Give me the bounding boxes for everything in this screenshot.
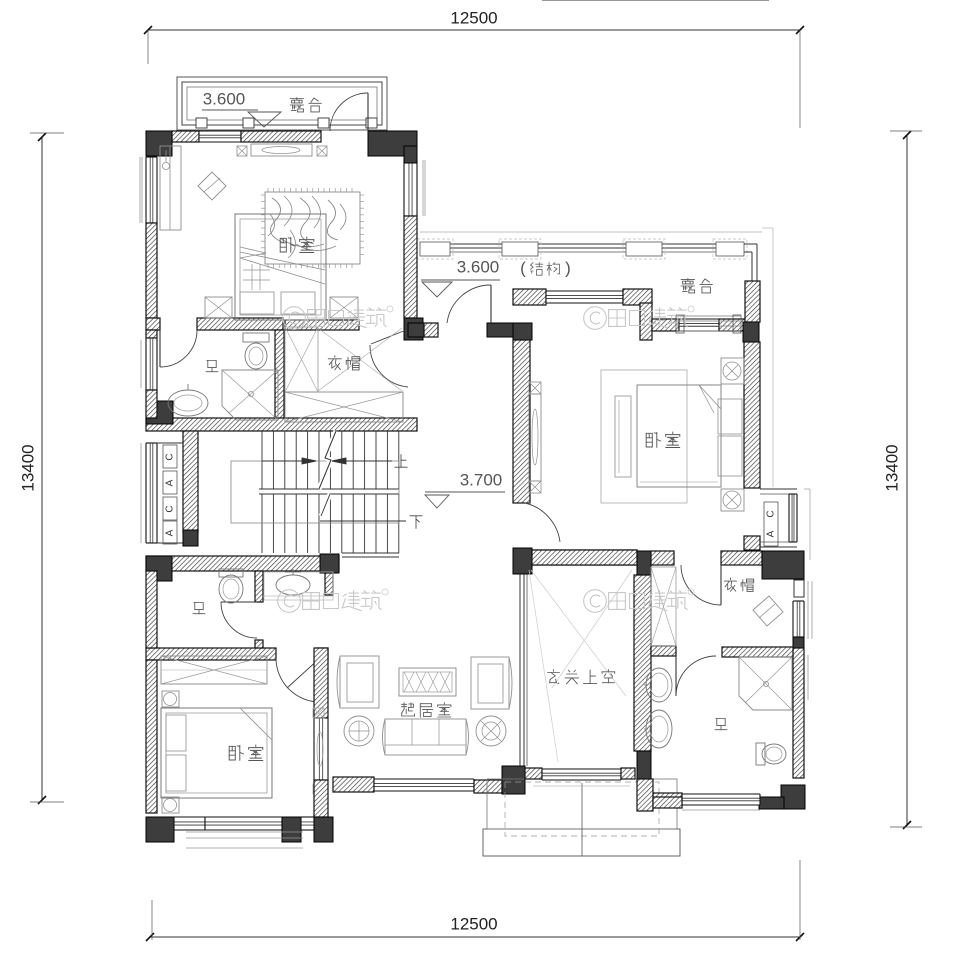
svg-text:A: A [165, 529, 176, 536]
svg-text:12500: 12500 [450, 914, 497, 933]
svg-text:3.600: 3.600 [203, 89, 246, 108]
svg-text:C: C [165, 505, 176, 512]
svg-text:(: ( [520, 258, 526, 277]
svg-text:13400: 13400 [18, 444, 37, 491]
svg-text:3.600: 3.600 [457, 257, 500, 276]
svg-text:3.700: 3.700 [460, 470, 503, 489]
svg-text:): ) [565, 258, 571, 277]
svg-text:C: C [165, 453, 176, 460]
svg-text:12500: 12500 [450, 8, 497, 27]
svg-text:C: C [766, 510, 777, 517]
svg-text:A: A [766, 530, 777, 537]
svg-text:A: A [165, 479, 176, 486]
svg-text:13400: 13400 [882, 444, 901, 491]
